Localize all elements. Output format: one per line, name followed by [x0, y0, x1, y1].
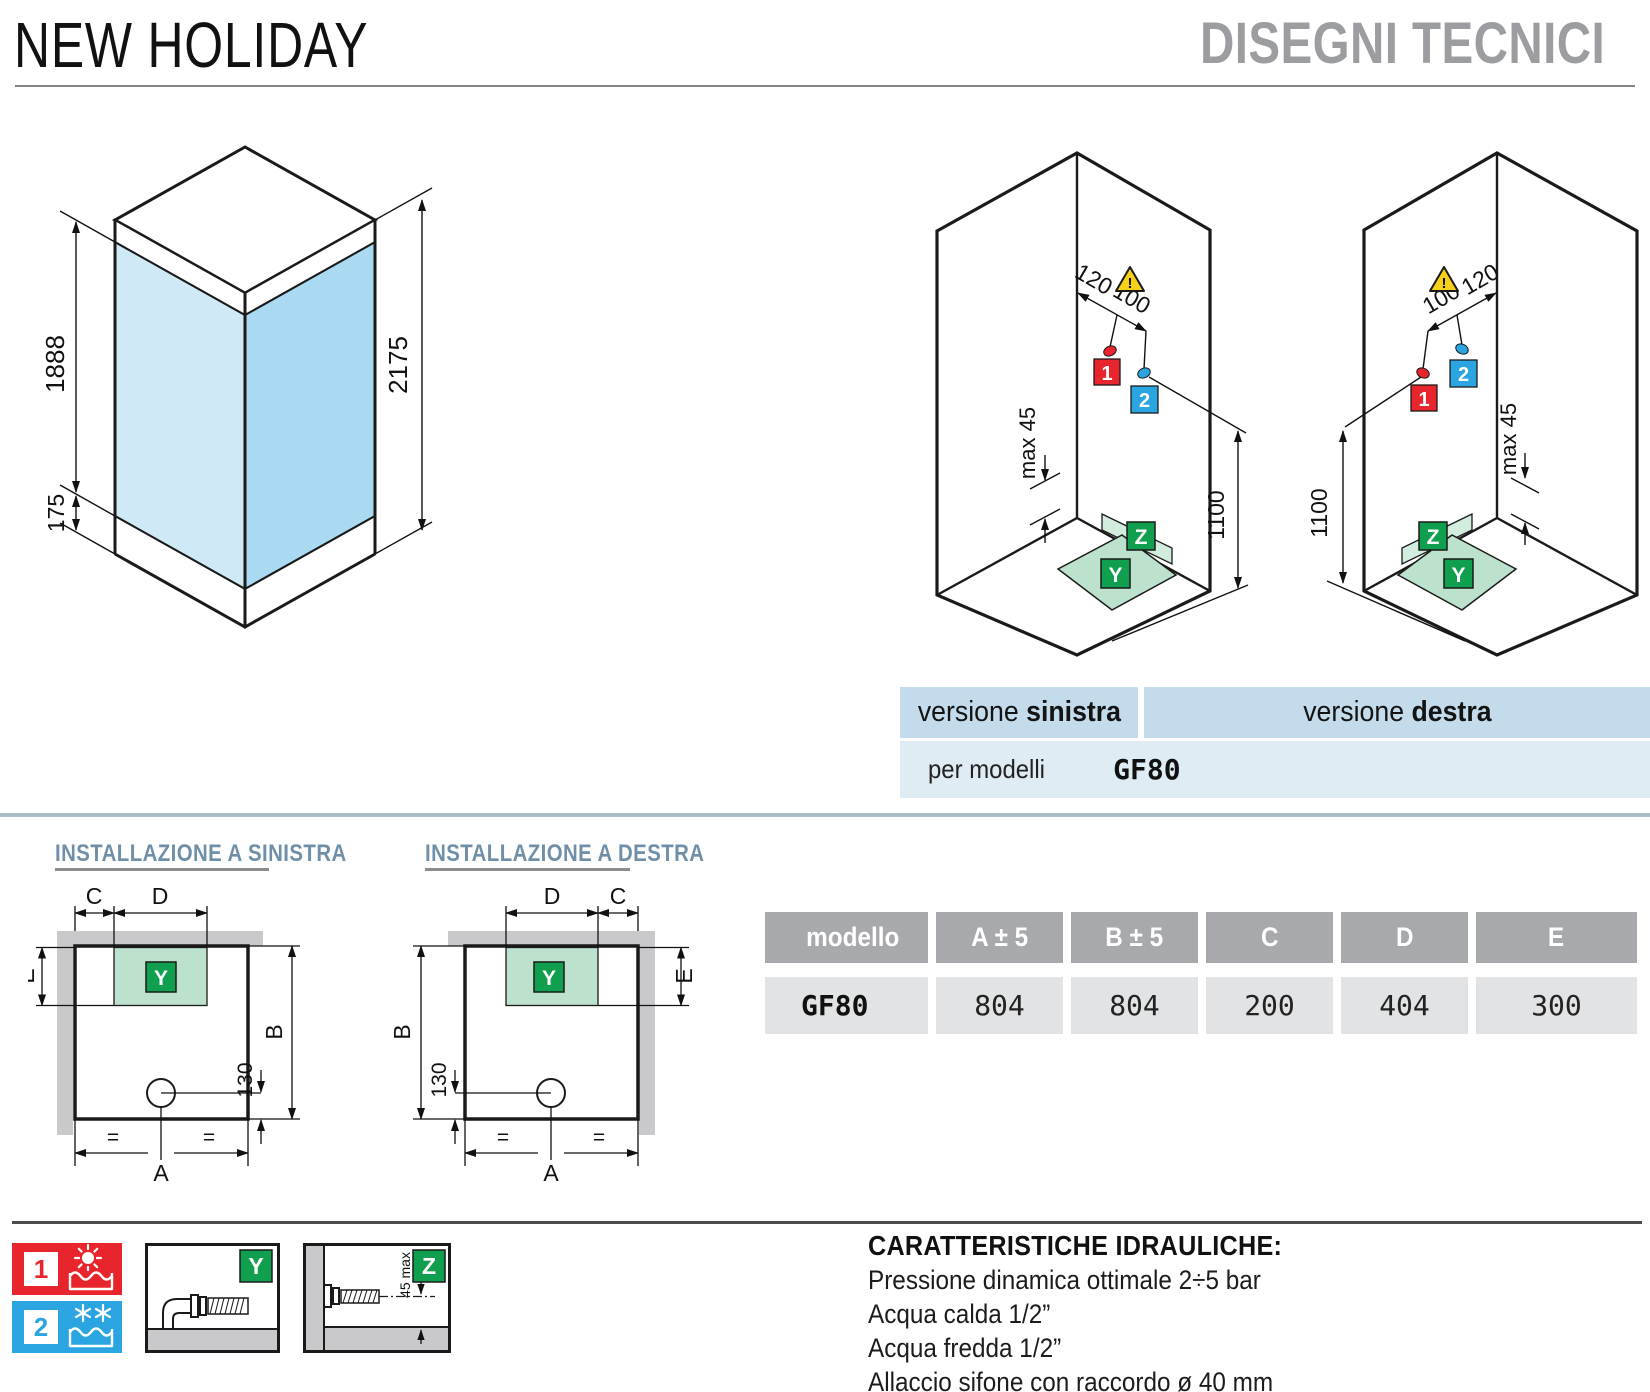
wall-dim-label: 45 max: [397, 1252, 413, 1298]
wall-left: [57, 931, 73, 1135]
table-cell-c: 200: [1206, 977, 1333, 1034]
dim-max45: max 45: [1496, 403, 1521, 475]
sun-icon: [75, 1245, 101, 1270]
dim-d: D: [544, 883, 561, 909]
version-right-label: versione destra: [1303, 696, 1491, 729]
dim-e: E: [671, 968, 697, 983]
table-cell-b: 804: [1071, 977, 1198, 1034]
iso-right-version-drawing: 100 120 ! 2 1 max 45 1100 Z Y: [1255, 133, 1645, 663]
dim-c: C: [86, 883, 103, 909]
dim-b: B: [261, 1024, 287, 1039]
legend-wall-drain: 45 max Z: [303, 1243, 451, 1353]
table-cell-model: GF80: [765, 977, 928, 1034]
hot-tag: 1: [1101, 363, 1112, 385]
table-header-a: A ± 5: [936, 912, 1063, 963]
cabin-isometric-drawing: 1888 175 2175: [30, 112, 460, 672]
catalog-page: NEW HOLIDAY DISEGNI TECNICI: [0, 0, 1650, 1392]
equal-mark: =: [107, 1126, 119, 1149]
hydraulics-notes: CARATTERISTICHE IDRAULICHE: Pressione di…: [868, 1230, 1282, 1392]
cabin-dim-glass-height: 1888: [40, 335, 70, 393]
table-header-b: B ± 5: [1071, 912, 1198, 963]
installation-left-underline: [55, 868, 269, 871]
plan-left-drawing: Y C D E B 130 = = A: [28, 876, 360, 1194]
hydraulics-line: Acqua fredda 1/2”: [868, 1333, 1282, 1364]
version-left-bar: versione sinistra: [900, 687, 1138, 738]
cold-tag: 2: [1458, 364, 1469, 386]
installation-left-title: INSTALLAZIONE A SINISTRA: [55, 840, 347, 868]
dim-1100: 1100: [1306, 488, 1332, 537]
wall-drain-tag: Z: [1427, 526, 1440, 549]
models-label: per modelli: [928, 754, 1045, 785]
cold-tag: 2: [1139, 390, 1150, 412]
installation-right-underline: [425, 868, 630, 871]
floor-tag: Y: [248, 1253, 263, 1279]
equal-mark: =: [593, 1126, 605, 1149]
floor-strip: [324, 1327, 448, 1350]
dim-130: 130: [234, 1062, 257, 1097]
dim-a: A: [543, 1160, 559, 1186]
wall-top: [58, 931, 263, 946]
models-value: GF80: [1113, 753, 1180, 786]
page-subtitle: DISEGNI TECNICI: [1200, 10, 1605, 77]
dim-e: E: [28, 968, 39, 983]
table-cell-e: 300: [1476, 977, 1637, 1034]
table-header-e: E: [1476, 912, 1637, 963]
wall-tag: Z: [422, 1253, 436, 1279]
dim-a: A: [153, 1160, 169, 1186]
hydraulics-title: CARATTERISTICHE IDRAULICHE:: [868, 1230, 1282, 1262]
floor-strip: [148, 1329, 277, 1350]
equal-mark: =: [203, 1126, 215, 1149]
dim-b: B: [393, 1024, 415, 1039]
table-header-c: C: [1206, 912, 1333, 963]
drain-tag: Y: [542, 967, 556, 990]
hot-tag: 1: [34, 1254, 48, 1284]
hot-tag: 1: [1418, 389, 1429, 411]
wall-strip: [306, 1246, 324, 1350]
dim-130: 130: [428, 1062, 451, 1097]
hydraulics-line: Allaccio sifone con raccordo ø 40 mm: [868, 1367, 1282, 1392]
legend-floor-drain: Y: [145, 1243, 280, 1353]
table-cell-d: 404: [1341, 977, 1468, 1034]
dim-max45: max 45: [1015, 407, 1040, 479]
version-left-label: versione sinistra: [917, 696, 1120, 729]
table-header-modello: modello: [765, 912, 928, 963]
header-rule: [15, 85, 1635, 87]
version-right-bar: versione destra: [1144, 687, 1650, 738]
table-header-row: modello A ± 5 B ± 5 C D E: [765, 912, 1637, 963]
legend-water-connections: 1 2: [12, 1243, 122, 1353]
warning-exclamation: !: [1128, 275, 1133, 292]
table-header-d: D: [1341, 912, 1468, 963]
drain-tag: Y: [1108, 564, 1122, 587]
hydraulics-line: Pressione dinamica ottimale 2÷5 bar: [868, 1265, 1282, 1296]
table-row: GF80 804 804 200 404 300: [765, 977, 1637, 1034]
table-cell-a: 804: [936, 977, 1063, 1034]
installation-right-title: INSTALLAZIONE A DESTRA: [425, 840, 704, 868]
plan-right-drawing: Y D C E B 130 = = A: [393, 876, 725, 1194]
section-divider-bottom: [12, 1221, 1642, 1224]
hydraulics-line: Acqua calda 1/2”: [868, 1299, 1282, 1330]
iso-left-version-drawing: 120 100 ! 1 2 max 45 1100 Z Y: [872, 133, 1257, 663]
models-row: per modelli GF80: [900, 741, 1650, 798]
equal-mark: =: [497, 1126, 509, 1149]
wall-top: [448, 931, 655, 946]
wall-right: [639, 931, 655, 1135]
cold-tag: 2: [34, 1312, 48, 1342]
drain-tag: Y: [1451, 564, 1465, 587]
page-title: NEW HOLIDAY: [14, 8, 368, 82]
cabin-dim-tray-height: 175: [43, 494, 69, 532]
dim-c: C: [610, 883, 627, 909]
dim-1100: 1100: [1203, 490, 1229, 539]
section-divider-top: [0, 813, 1650, 817]
wall-drain-tag: Z: [1135, 526, 1148, 549]
dim-d: D: [152, 883, 169, 909]
dimensions-table: modello A ± 5 B ± 5 C D E GF80 804 804 2…: [765, 912, 1637, 1034]
drain-tag: Y: [154, 967, 168, 990]
warning-exclamation: !: [1442, 275, 1447, 292]
cabin-dim-total-height: 2175: [383, 336, 413, 394]
